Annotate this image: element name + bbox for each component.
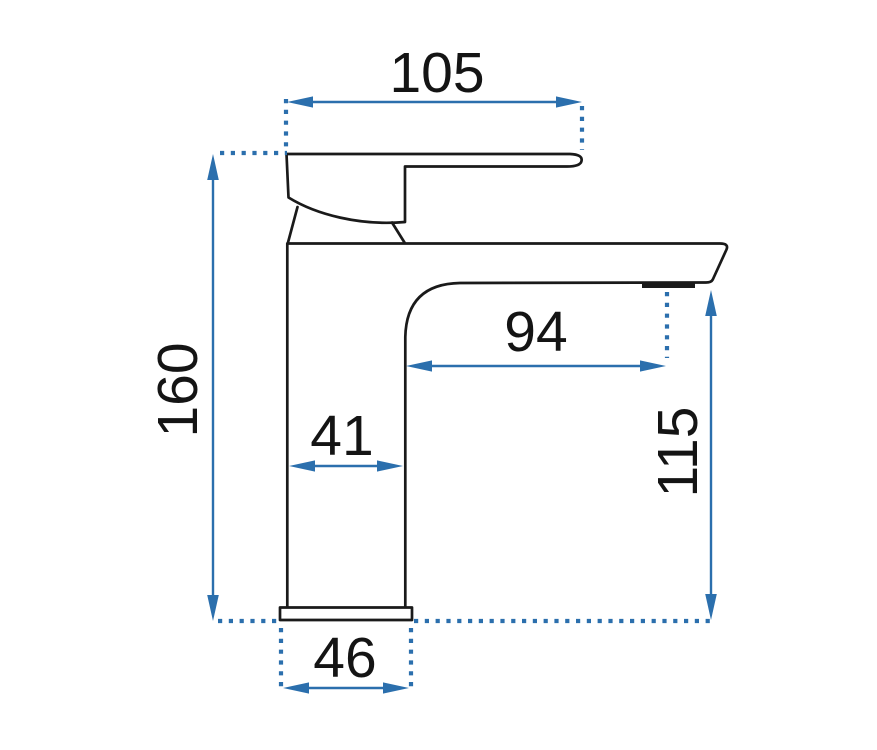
faucet-technical-drawing: 105 160 94 41 (0, 0, 877, 750)
neck-line-right (392, 223, 405, 243)
faucet-diagram-svg: 105 160 94 41 (0, 0, 877, 750)
dimension-body-depth: 41 (289, 404, 403, 472)
arrowhead-94-left (406, 360, 432, 371)
arrowhead-105-right (556, 96, 582, 107)
dimension-spout-reach: 94 (406, 292, 667, 372)
arrowhead-94-right (640, 360, 666, 371)
label-spout-reach: 94 (504, 300, 567, 364)
arrowhead-46-right (383, 682, 409, 693)
label-overall-height: 160 (146, 342, 210, 437)
label-body-depth: 41 (310, 404, 373, 468)
dimension-spout-top-width: 105 (286, 41, 582, 150)
faucet-outline (280, 154, 727, 620)
arrowhead-115-bottom (705, 594, 717, 620)
label-base-width: 46 (313, 626, 376, 690)
dimension-base-width: 46 (281, 626, 411, 694)
aerator (642, 282, 695, 289)
arrowhead-105-left (287, 96, 313, 107)
dimension-spout-outlet-height: 115 (646, 290, 717, 620)
arrowhead-46-left (283, 682, 309, 693)
arrowhead-41-right (377, 460, 403, 471)
dimension-overall-height: 160 (146, 153, 287, 621)
lever-handle-outline (287, 154, 582, 223)
label-spout-outlet-height: 115 (646, 407, 710, 498)
base-plate (280, 608, 412, 621)
arrowhead-115-top (705, 290, 717, 316)
arrowhead-160-bottom (207, 595, 219, 621)
label-spout-top-width: 105 (389, 41, 484, 105)
arrowhead-160-top (207, 154, 219, 180)
neck-line-left (288, 207, 298, 243)
